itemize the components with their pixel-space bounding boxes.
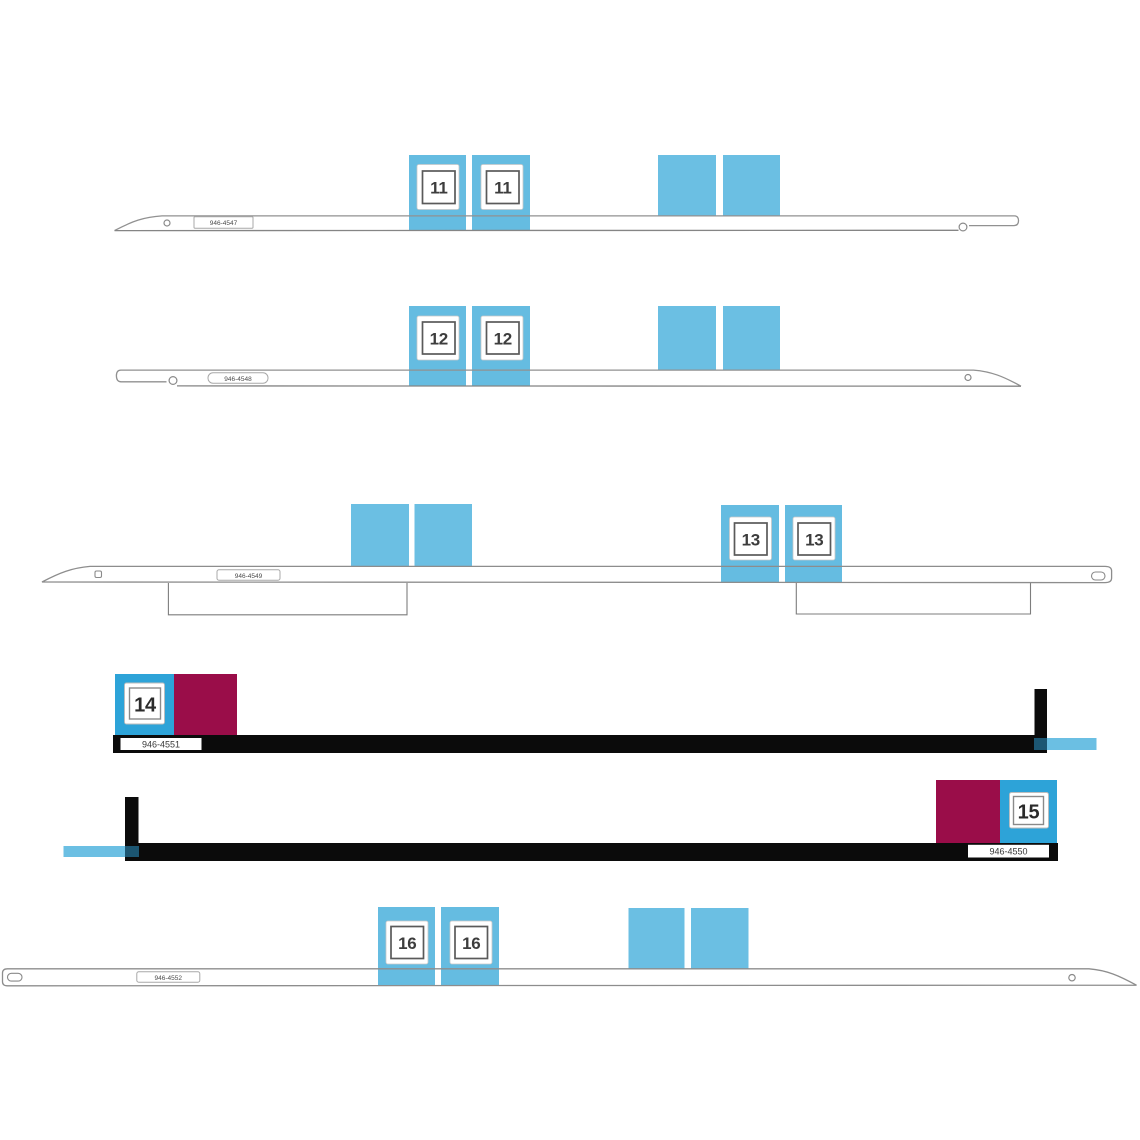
svg-text:946-4552: 946-4552 <box>155 975 183 982</box>
svg-text:946-4551: 946-4551 <box>142 739 180 749</box>
svg-text:11: 11 <box>430 179 447 198</box>
svg-text:12: 12 <box>430 330 448 349</box>
svg-text:946-4547: 946-4547 <box>210 220 238 227</box>
svg-text:14: 14 <box>134 695 157 717</box>
svg-text:16: 16 <box>398 934 416 953</box>
svg-text:15: 15 <box>1018 802 1040 824</box>
svg-text:12: 12 <box>494 330 512 349</box>
svg-text:946-4550: 946-4550 <box>989 847 1027 857</box>
svg-text:13: 13 <box>805 531 823 550</box>
svg-text:16: 16 <box>462 934 480 953</box>
svg-text:946-4548: 946-4548 <box>224 376 252 383</box>
svg-text:13: 13 <box>742 531 760 550</box>
svg-text:11: 11 <box>494 179 511 198</box>
svg-text:946-4549: 946-4549 <box>235 573 263 580</box>
